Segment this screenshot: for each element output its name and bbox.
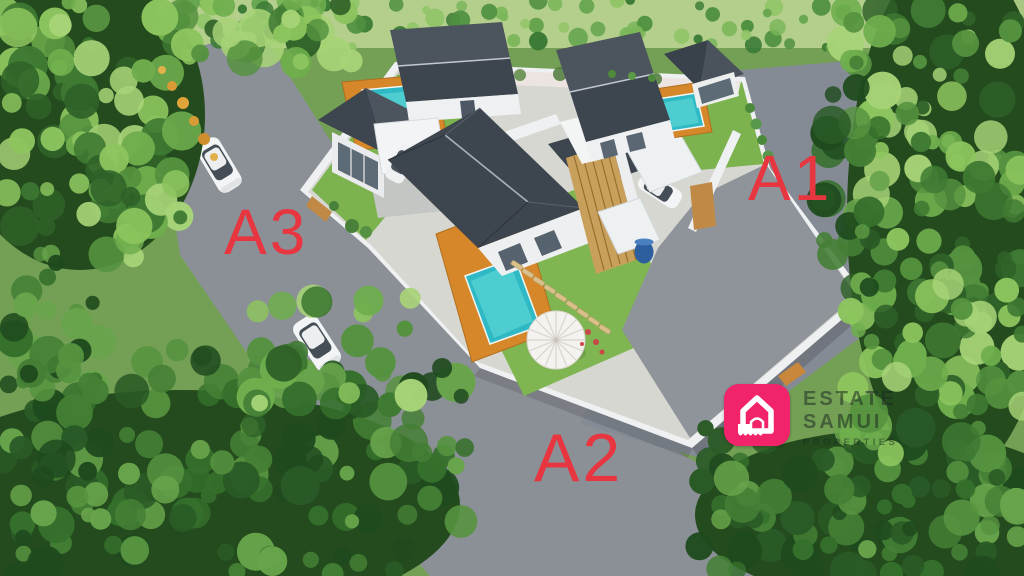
watermark-text: ESTATE SAMUI PROPERTIES bbox=[803, 388, 898, 448]
unit-label-a3: A3 bbox=[224, 200, 308, 264]
pool-umbrella bbox=[527, 311, 586, 369]
brand-line3: PROPERTIES bbox=[803, 437, 898, 448]
watermark: ESTATE SAMUI PROPERTIES bbox=[724, 384, 898, 448]
estate-samui-logo-icon bbox=[724, 384, 790, 446]
brand-line1: ESTATE bbox=[803, 388, 898, 411]
site-aerial-render bbox=[0, 0, 1024, 576]
unit-label-a2: A2 bbox=[534, 424, 623, 492]
house-logo-glyph bbox=[724, 384, 790, 446]
brand-line2: SAMUI bbox=[803, 411, 898, 434]
water-tank-lid bbox=[635, 239, 654, 246]
unit-label-a1: A1 bbox=[748, 146, 832, 210]
aerial-render: A1 A2 A3 ESTATE SAMUI PROPERTIES bbox=[0, 0, 1024, 576]
wood-gate-east bbox=[690, 182, 716, 230]
